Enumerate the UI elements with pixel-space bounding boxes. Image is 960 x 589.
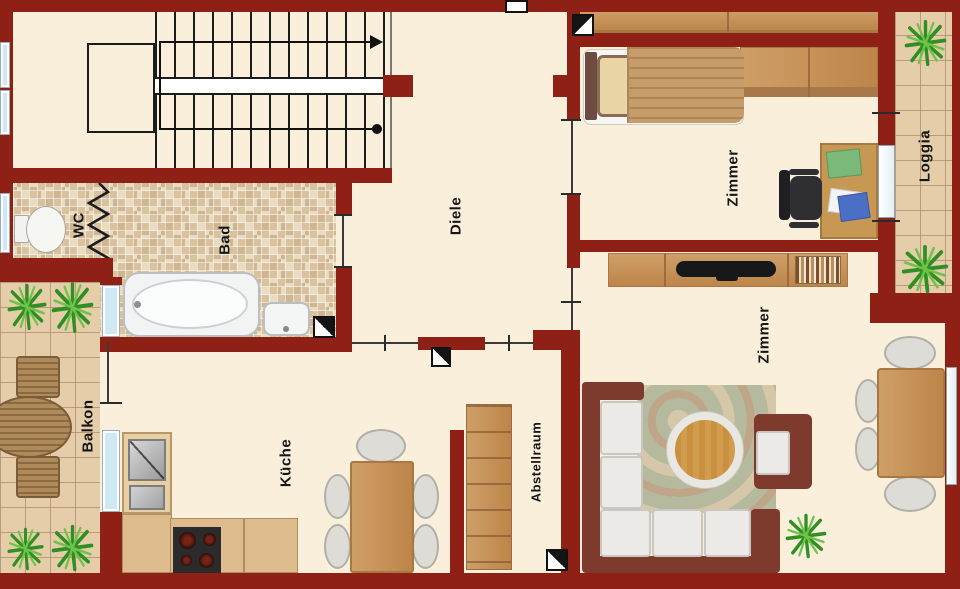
entrance-door-marker [505,0,528,13]
kitchen-counter [122,514,172,573]
diagonal-marker-icon [546,549,568,571]
door-tick [334,266,352,268]
plant-icon [50,280,95,335]
office-chair-armrest [789,169,819,175]
storage-cabinet [466,404,512,570]
diagonal-marker-icon [313,316,335,338]
door-tick [100,402,122,404]
stove-burner [203,533,216,546]
room-label-balkon: Balkon [80,399,97,452]
wall [0,0,960,12]
room-label-wc: WC [71,212,88,238]
room-label-kueche: Küche [278,439,295,487]
stair-direction-line-up [160,41,372,43]
stair-direction-connector [159,41,161,130]
plant-icon [6,282,48,332]
plant-icon [900,243,950,295]
wall [870,293,960,323]
kitchen-chair [412,524,439,569]
sofa-cushion [704,509,751,557]
wall [567,195,580,268]
kitchen-chair [324,474,351,519]
bathtub-icon [123,272,260,337]
wc-window [0,193,10,253]
kitchen-chair [412,474,439,519]
kitchen-chair [356,429,406,463]
toilet-icon [26,206,66,253]
wall [567,33,895,47]
room-label-bad: Bad [217,225,234,255]
kitchen-chair [324,524,351,569]
floor-plan: WC Bad Diele Zimmer Loggia Zimmer Balkon… [0,0,960,589]
door-line [571,268,573,330]
diagonal-marker-icon [431,347,451,367]
kitchen-table [350,461,414,573]
armchair-seat [756,431,790,475]
balcony-bench [16,456,60,498]
stove-icon [173,527,221,573]
sofa-cushion [652,509,703,557]
basin-drain [283,326,289,332]
washbasin-icon [263,302,310,336]
door-tick [334,214,352,216]
counter-divider [243,518,245,573]
wall [0,168,392,183]
wall [100,337,122,347]
door-tick [872,220,900,222]
stair-landing-gap [150,77,383,95]
dining-chair [884,476,936,512]
door-line [342,215,344,268]
desk-folder [837,192,870,222]
sofa-cushion [600,509,651,557]
stove-burner [181,555,192,566]
door-tick [561,193,581,195]
door-tick [508,335,510,351]
wardrobe-divider [808,47,810,97]
plant-icon [50,523,95,573]
balcony-bench [16,356,60,398]
door-tick [872,112,900,114]
sofa-frame [582,382,600,572]
stair-direction-line-low [160,128,376,130]
wall [336,183,352,215]
door-tick [561,119,581,121]
stair-well-outline [87,43,155,133]
office-chair-armrest [789,222,819,228]
wall [418,337,485,350]
stove-burner [179,532,196,549]
stair-flight-lower [155,95,390,168]
office-chair-back [779,170,790,220]
dining-table [877,368,945,478]
loggia-parapet [952,0,960,300]
tv-stand [716,270,738,281]
stove-burner [199,553,214,568]
dining-chair [884,336,936,370]
closet-divider [727,11,729,32]
wall [533,330,580,350]
wall [0,258,113,282]
door-tick [384,335,386,351]
kitchen-window [102,430,120,512]
sideboard-divider [787,253,789,287]
room-label-zimmer-bottom: Zimmer [756,306,773,363]
sofa-cushion [600,456,643,509]
built-in-closet [580,10,878,33]
plant-icon [903,18,948,68]
room-label-diele: Diele [448,197,465,235]
bathtub-basin [132,279,248,329]
sofa-cushion [600,401,643,455]
plant-icon [6,526,45,572]
wall [100,512,122,573]
bed-blanket [627,47,744,123]
stairwell-window [0,42,10,88]
wall [878,218,895,298]
armchair-icon [754,414,812,489]
wall [0,573,960,589]
room-label-abstellraum: Abstellraum [529,422,544,503]
diagonal-marker-icon [572,14,594,36]
living-room-radiator [946,367,957,485]
sofa-frame [751,509,780,573]
room-label-zimmer-top: Zimmer [725,149,742,206]
wall [100,337,352,352]
wall [450,430,464,573]
wall [100,277,122,285]
desk-pad [826,148,863,178]
office-chair-icon [790,176,822,220]
bathtub-faucet [134,301,141,308]
room-label-loggia: Loggia [917,130,934,182]
coffee-table-icon [667,412,743,488]
plant-icon [784,512,828,560]
stairwell-window [0,90,10,135]
stair-flight-upper [155,12,390,78]
bath-window [102,285,120,337]
kitchen-sink-icon [128,439,166,481]
wall-stub [383,75,413,97]
loggia-door-glass [878,145,895,218]
books-icon [795,256,841,284]
stair-arrow-icon [370,35,383,49]
sink-drainer [129,485,165,510]
wall [878,10,895,145]
sideboard-divider [664,253,666,287]
wall [561,330,580,573]
stair-start-dot-icon [372,124,382,134]
balcony-door-line [107,342,109,402]
door-tick [561,301,581,303]
wall [567,240,895,252]
door-line [571,120,573,195]
bed-headboard [585,52,597,120]
